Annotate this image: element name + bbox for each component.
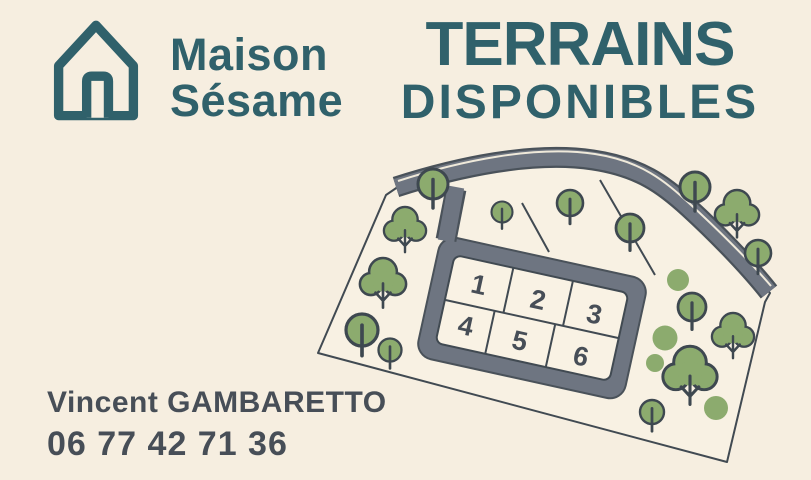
contact-phone: 06 77 42 71 36 (47, 425, 387, 464)
house-icon (44, 18, 148, 126)
headline-line2: DISPONIBLES (368, 79, 792, 127)
house-door (87, 76, 109, 118)
headline: TERRAINS DISPONIBLES (368, 14, 792, 127)
real-estate-sign: Maison Sésame TERRAINS DISPONIBLES (0, 0, 811, 480)
bush-icon (667, 269, 689, 291)
bush-icon (646, 354, 664, 372)
bush-icon (704, 396, 728, 420)
contact-block: Vincent GAMBARETTO 06 77 42 71 36 (47, 386, 387, 464)
brand-name-line2: Sésame (170, 78, 343, 124)
brand-name: Maison Sésame (170, 32, 343, 124)
brand-logo: Maison Sésame (44, 18, 343, 126)
brand-name-line1: Maison (170, 32, 343, 78)
headline-line1: TERRAINS (368, 14, 792, 76)
access-road (446, 187, 456, 241)
bush-icon (653, 326, 678, 351)
contact-name: Vincent GAMBARETTO (47, 386, 387, 420)
